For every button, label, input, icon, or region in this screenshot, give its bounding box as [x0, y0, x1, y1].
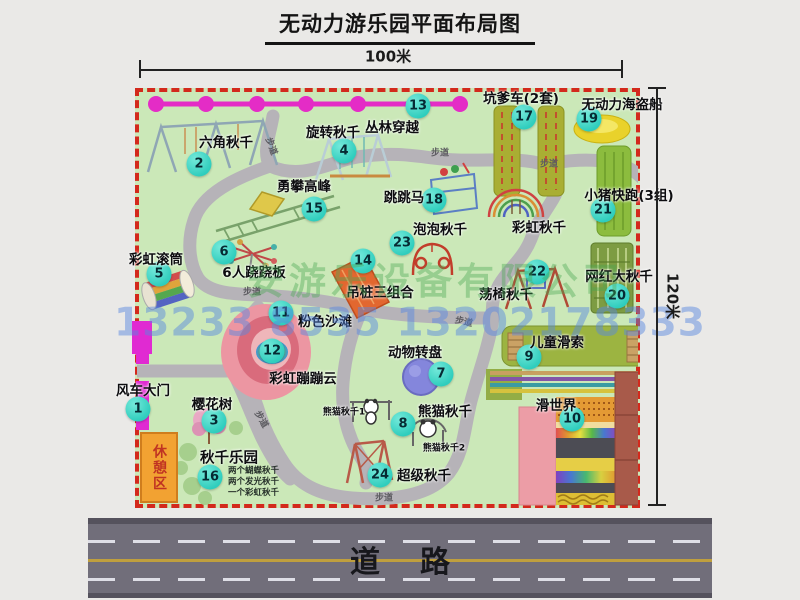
rest-area-box: 休憩区: [140, 432, 178, 503]
watermark-company: 安游乐设备有限公司: [247, 251, 625, 305]
attraction-badge-2: 2: [187, 152, 212, 177]
swing-park-note-3: 一个彩虹秋千: [228, 486, 279, 498]
attraction-label-8: 熊猫秋千: [418, 400, 472, 420]
top-dimension-line: [140, 69, 623, 71]
road-band: 道路: [88, 518, 712, 598]
attraction-label-19: 无动力海盗船: [582, 93, 663, 113]
park-plan-page: { "title": "无动力游乐园平面布局图", "dimensions": …: [0, 0, 800, 600]
attraction-label-13: 丛林穿越: [365, 116, 419, 136]
top-dimension-tick-left: [139, 60, 141, 78]
attraction-label-21: 小猪快跑(3组): [584, 184, 673, 204]
attraction-badge-24: 24: [368, 463, 393, 488]
watermark-phone: 13233 8535 13202178333: [114, 301, 706, 346]
right-dimension-tick-bottom: [648, 504, 666, 506]
attraction-label-15: 勇攀高峰: [277, 175, 331, 195]
page-title: 无动力游乐园平面布局图: [265, 6, 535, 45]
road-label: 道路: [88, 524, 712, 593]
width-dimension-label: 100米: [365, 46, 411, 67]
page-title-wrap: 无动力游乐园平面布局图: [0, 6, 800, 45]
attraction-badge-18: 18: [422, 188, 447, 213]
trail-label-3: 步道: [540, 157, 558, 170]
attraction-label-18: 跳跳马: [384, 186, 425, 206]
attraction-label-4: 旋转秋千: [306, 121, 360, 141]
trail-label-7: 步道: [375, 491, 393, 504]
attraction-badge-17: 17: [512, 105, 537, 130]
trail-label-2: 步道: [431, 146, 449, 159]
attraction-badge-16: 16: [198, 465, 223, 490]
attraction-label-23: 泡泡秋千: [413, 218, 467, 238]
attraction-label-17: 坑爹车(2套): [483, 87, 559, 107]
attraction-label-12: 彩虹蹦蹦云: [269, 367, 337, 387]
attraction-label-3: 樱花树: [192, 393, 233, 413]
attraction-label-10: 滑世界: [536, 394, 577, 414]
right-dimension-line: [656, 88, 658, 506]
attraction-badge-7: 7: [429, 362, 454, 387]
top-dimension-tick-right: [621, 60, 623, 78]
rest-area-label: 休憩区: [149, 444, 169, 492]
attraction-label-5: 彩虹滚筒: [129, 248, 183, 268]
attraction-badge-8: 8: [391, 412, 416, 437]
attraction-badge-15: 15: [302, 197, 327, 222]
attraction-label-24: 超级秋千: [397, 464, 451, 484]
attraction-label-2: 六角秋千: [199, 131, 253, 151]
attraction-label-1: 风车大门: [116, 379, 170, 399]
panda-swing-1-label: 熊猫秋千1: [323, 405, 365, 418]
rainbow-swing-label: 彩虹秋千: [512, 216, 566, 236]
right-dimension-tick-top: [648, 87, 666, 89]
panda-swing-2-label: 熊猫秋千2: [423, 441, 465, 454]
height-dimension-label: 120米: [663, 273, 684, 319]
attraction-badge-13: 13: [406, 94, 431, 119]
attraction-badge-4: 4: [332, 139, 357, 164]
attraction-badge-1: 1: [126, 397, 151, 422]
